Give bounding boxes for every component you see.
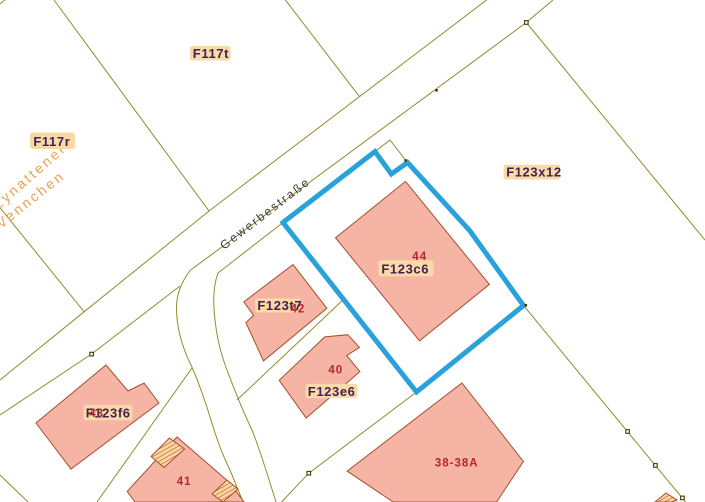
svg-text:F117t: F117t	[193, 46, 229, 61]
svg-text:F123e6: F123e6	[308, 384, 356, 399]
svg-text:43: 43	[89, 408, 104, 420]
svg-text:F117r: F117r	[33, 134, 70, 149]
svg-text:42: 42	[291, 304, 306, 316]
svg-text:40: 40	[328, 365, 343, 377]
svg-text:F123x12: F123x12	[506, 165, 562, 180]
svg-text:F123c6: F123c6	[381, 261, 429, 276]
svg-text:44: 44	[412, 251, 427, 263]
svg-text:38-38A: 38-38A	[435, 457, 479, 469]
svg-text:41: 41	[177, 476, 192, 488]
